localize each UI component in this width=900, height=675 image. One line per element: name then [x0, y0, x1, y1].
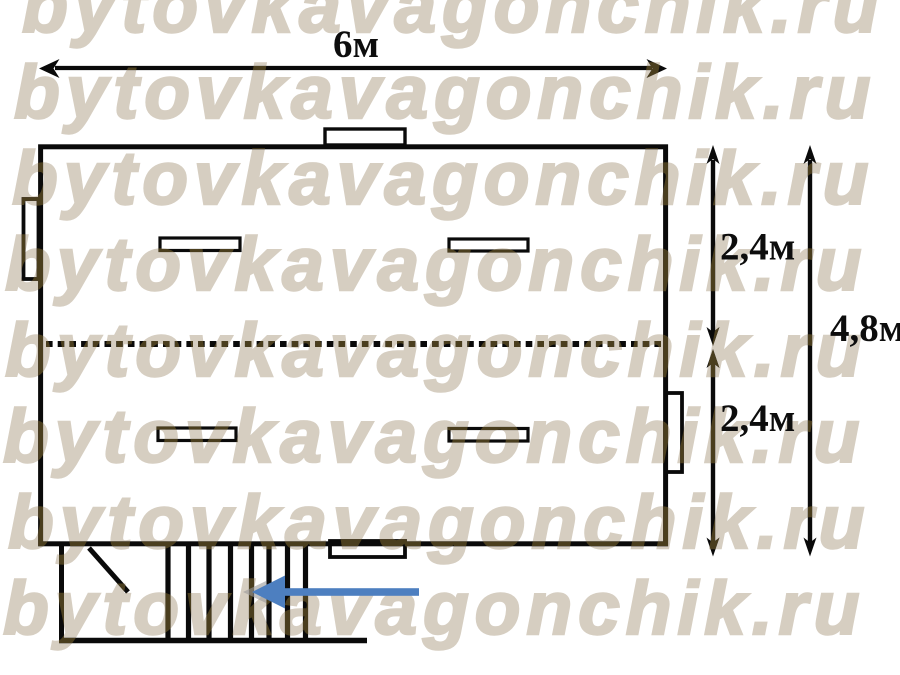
svg-text:bytovkavagonchik.ru: bytovkavagonchik.ru	[12, 136, 874, 220]
svg-text:bytovkavagonchik.ru: bytovkavagonchik.ru	[5, 308, 867, 392]
svg-text:2,4м: 2,4м	[720, 397, 795, 440]
svg-text:bytovkavagonchik.ru: bytovkavagonchik.ru	[22, 0, 884, 48]
svg-text:bytovkavagonchik.ru: bytovkavagonchik.ru	[8, 480, 870, 564]
svg-text:bytovkavagonchik.ru: bytovkavagonchik.ru	[14, 50, 876, 134]
svg-text:4,8м: 4,8м	[830, 307, 900, 350]
svg-text:6м: 6м	[333, 23, 379, 66]
svg-text:2,4м: 2,4м	[720, 226, 795, 269]
svg-text:bytovkavagonchik.ru: bytovkavagonchik.ru	[3, 566, 865, 650]
